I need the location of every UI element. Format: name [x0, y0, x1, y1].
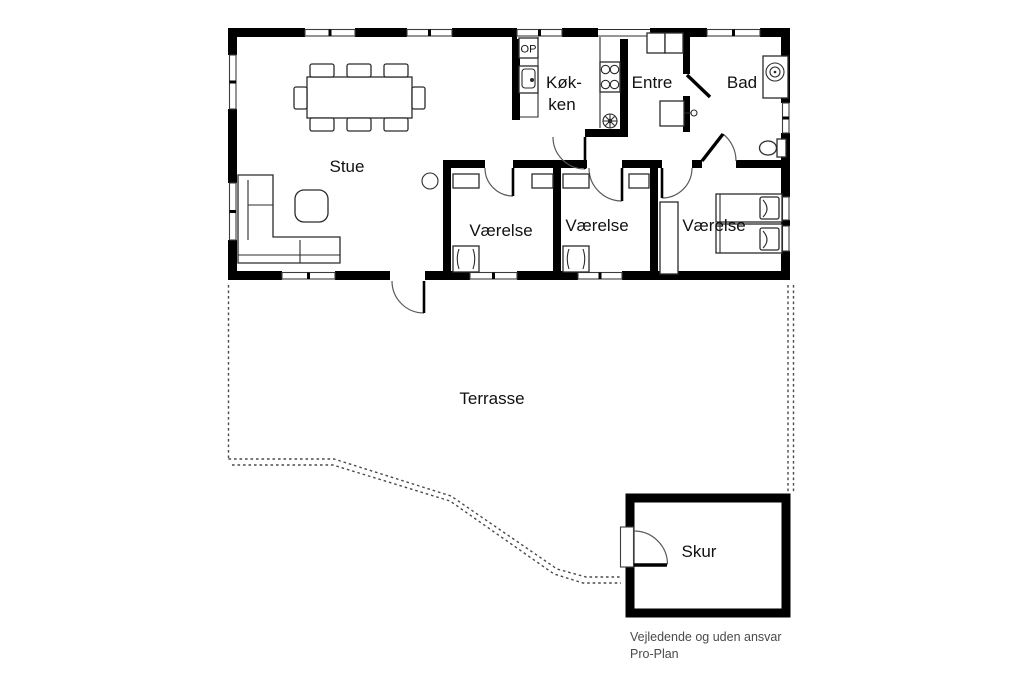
floor-plan-drawing: Stue OP Køk- ken: [0, 0, 1024, 682]
window-west-2: [226, 183, 239, 240]
floor-plan-page: Stue OP Køk- ken: [0, 0, 1024, 682]
front-door-opening: [598, 26, 650, 39]
floor-lamp: [422, 173, 438, 189]
footer-disclaimer: Vejledende og uden ansvar: [630, 630, 782, 644]
op-label: OP: [521, 44, 537, 56]
room-label-koekken-1: Køk-: [546, 73, 582, 92]
room-label-vaerelse-1: Værelse: [469, 221, 532, 240]
skur-building: Skur: [621, 498, 787, 613]
terrace-door: [390, 269, 425, 313]
closet: [453, 174, 479, 188]
toilet-icon: [760, 139, 787, 157]
wall-corridor-5: [736, 160, 782, 168]
room-label-vaerelse-3: Værelse: [682, 216, 745, 235]
dining-chair: [384, 118, 408, 131]
room-label-stue: Stue: [330, 157, 365, 176]
room-label-koekken-2: ken: [548, 95, 575, 114]
room-vaerelse-3: Værelse: [660, 194, 782, 274]
room-label-entre: Entre: [632, 73, 673, 92]
window-north-2: [407, 26, 452, 39]
dining-chair: [347, 64, 371, 77]
main-building: Stue OP Køk- ken: [226, 26, 792, 313]
dining-chair: [294, 87, 307, 109]
area-label-terrasse: Terrasse: [459, 389, 524, 408]
window-south-stue: [282, 269, 335, 282]
closet: [629, 174, 649, 188]
room-label-skur: Skur: [682, 542, 717, 561]
wall-entre-bad-upper: [683, 36, 690, 74]
room-label-vaerelse-2: Værelse: [565, 216, 628, 235]
terrasse-boundary-south-outer: [229, 459, 622, 577]
closet: [563, 174, 589, 188]
closet: [532, 174, 553, 188]
window-north-1: [305, 26, 355, 39]
room-koekken: OP Køk- ken: [519, 37, 620, 128]
bedroom1-door: [485, 168, 513, 196]
bed: [453, 246, 479, 272]
window-north-kitchen: [517, 26, 562, 39]
dining-chair: [347, 118, 371, 131]
bad-door: [702, 134, 736, 161]
stove: [600, 62, 620, 92]
room-label-bad: Bad: [727, 73, 757, 92]
terrasse-boundary-south-inner: [232, 465, 621, 583]
entre-cabinet: [660, 101, 684, 126]
window-north-bad: [707, 26, 760, 39]
wardrobe: [660, 202, 678, 274]
room-vaerelse-1: Værelse: [453, 174, 553, 272]
wall-corridor-4: [692, 160, 702, 168]
bed: [563, 246, 589, 272]
wall-bedroom1-left: [443, 160, 451, 272]
extractor-fan-icon: [603, 114, 617, 128]
entre-closet: [647, 33, 665, 53]
footer: Vejledende og uden ansvar Pro-Plan: [630, 630, 782, 661]
wall-bedroom2-3: [650, 160, 658, 272]
wall-corridor-2: [513, 160, 587, 168]
room-bad: Bad: [727, 56, 788, 157]
dining-chair: [412, 87, 425, 109]
bedroom3-door: [662, 168, 692, 198]
entre-closet: [665, 33, 683, 53]
room-stue: Stue: [238, 64, 438, 263]
wall-bedroom1-2: [553, 160, 561, 272]
wall-kitchen-right: [620, 28, 628, 137]
window-east-bad: [779, 103, 792, 133]
room-vaerelse-2: Værelse: [563, 174, 649, 272]
dining-chair: [310, 64, 334, 77]
window-west-1: [226, 55, 239, 109]
coffee-table: [295, 190, 328, 222]
dining-table: [307, 77, 412, 118]
bedroom2-door: [589, 168, 622, 201]
entre-bad-door: [687, 75, 710, 97]
wall-kitchen-bottom: [585, 129, 628, 137]
footer-brand: Pro-Plan: [630, 647, 679, 661]
dining-chair: [310, 118, 334, 131]
dining-chair: [384, 64, 408, 77]
kitchen-sink: [519, 66, 538, 93]
dining-table-set: [294, 64, 425, 131]
